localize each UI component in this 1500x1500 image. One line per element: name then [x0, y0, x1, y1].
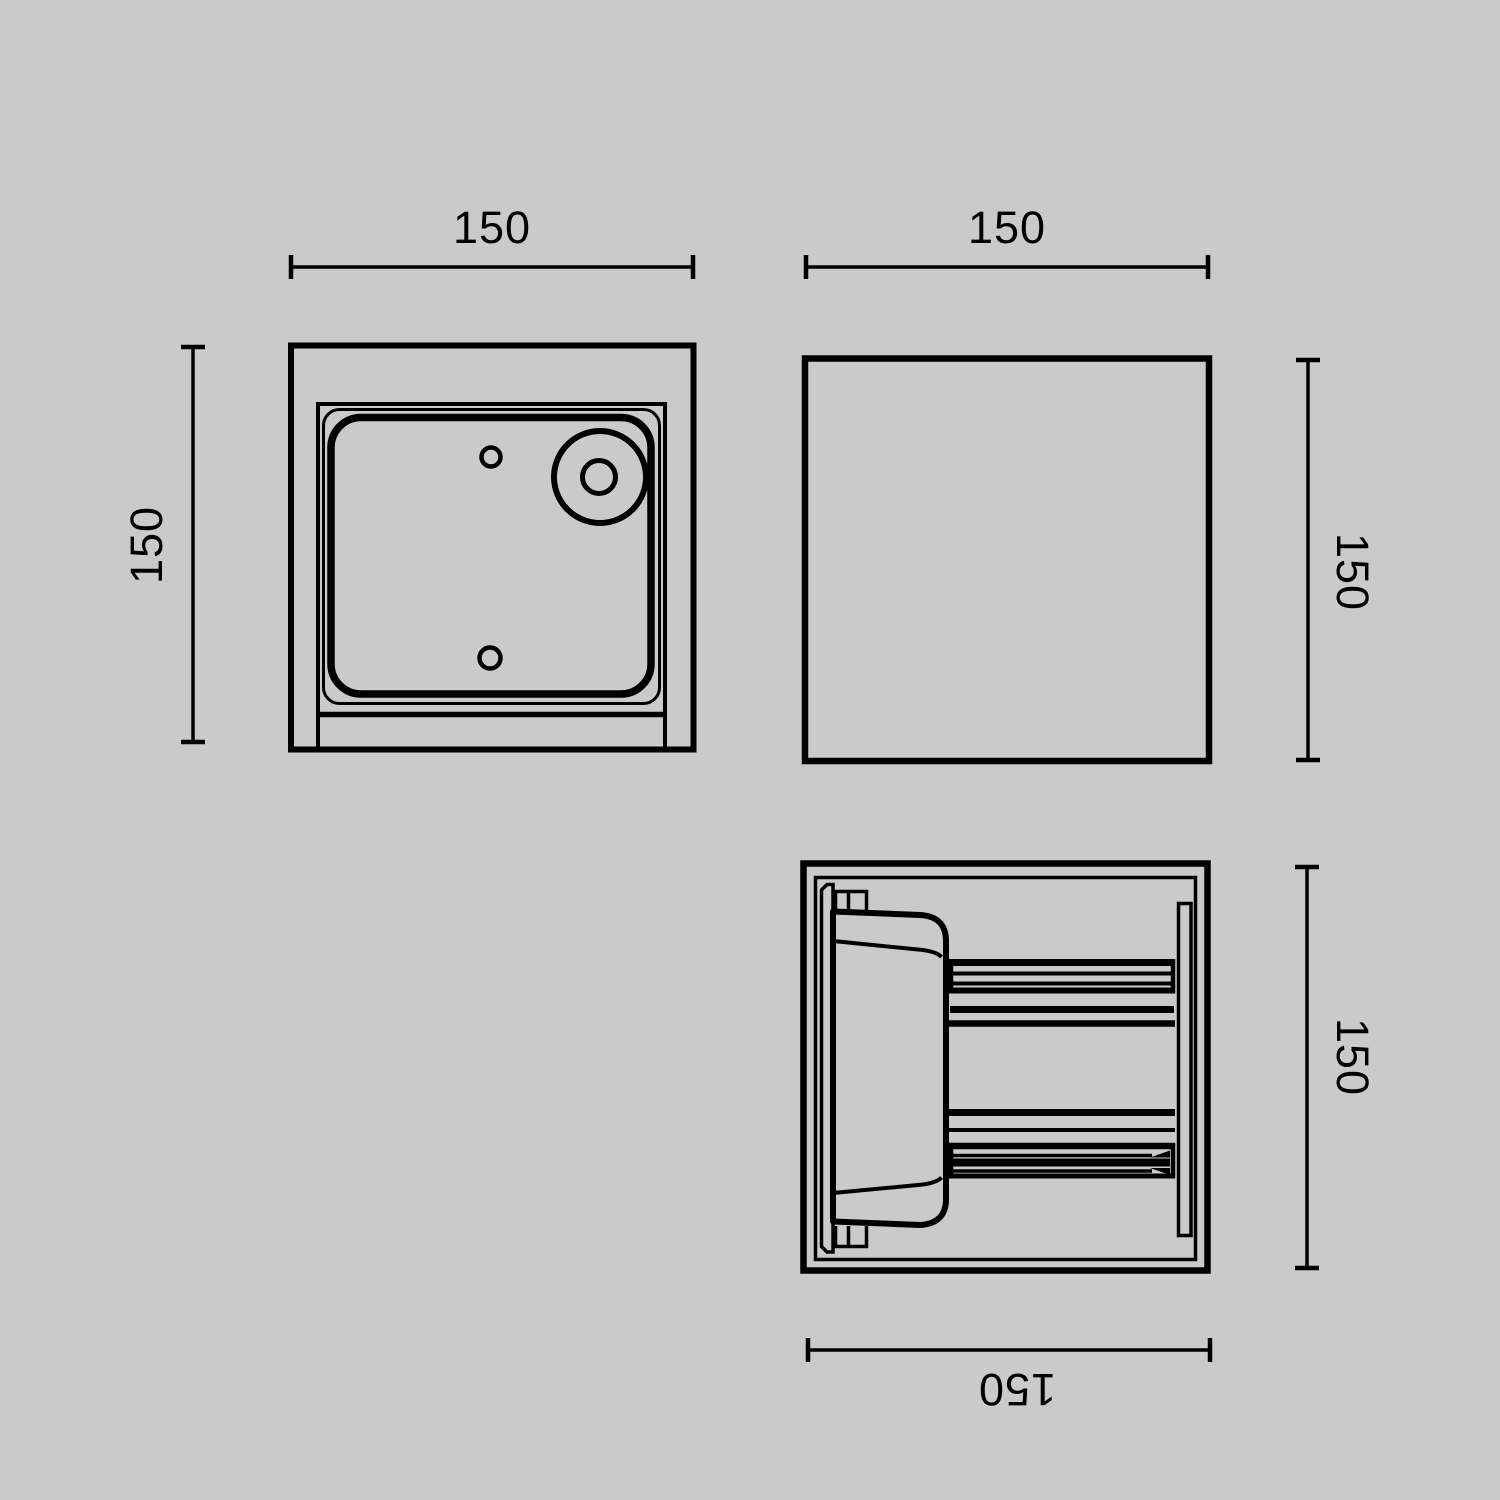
- back-view: [291, 346, 694, 750]
- clip-outline: [836, 1226, 867, 1247]
- side-width-label: 150: [968, 202, 1046, 253]
- top-view-depth-dimension: 150: [808, 1338, 1210, 1415]
- drawing-canvas: 150 150 150 150: [0, 0, 1500, 1500]
- top-view-louvers-lower: [949, 1113, 1175, 1179]
- top-view-inner-square: [816, 878, 1196, 1260]
- back-view-screw-hole-bottom: [480, 648, 501, 669]
- side-view-height-dimension: 150: [1296, 360, 1378, 760]
- side-view: [805, 359, 1209, 762]
- back-view-cable-entry-outer: [554, 431, 646, 523]
- technical-drawing-page: { "drawing": { "title": "cube wall light…: [0, 0, 1500, 1500]
- side-height-label: 150: [1327, 533, 1378, 611]
- screw-tip-upper: [1150, 1151, 1170, 1158]
- top-view-height-dimension: 150: [1295, 867, 1378, 1268]
- back-view-gasket-outline: [324, 410, 660, 704]
- top-view-clip-bottom: [836, 1226, 867, 1247]
- back-view-cable-entry-inner: [583, 461, 616, 494]
- back-view-width-dimension: 150: [291, 202, 693, 279]
- top-view-front-plate: [1179, 904, 1192, 1236]
- clip-outline: [836, 892, 867, 912]
- side-view-square: [805, 359, 1209, 762]
- top-view-body-taper-bottom: [833, 1178, 942, 1194]
- top-view-louvers-upper: [949, 959, 1175, 1024]
- top-view-outer-square: [804, 864, 1208, 1271]
- back-view-height-dimension: 150: [121, 347, 205, 742]
- back-width-label: 150: [453, 202, 531, 253]
- top-height-label: 150: [1327, 1018, 1378, 1096]
- top-view-clip-top: [836, 892, 867, 912]
- top-view-body-outline: [833, 912, 946, 1226]
- top-depth-label: 150: [978, 1364, 1056, 1415]
- back-view-screw-hole-top: [482, 448, 501, 467]
- back-height-label: 150: [121, 506, 172, 584]
- top-view: [804, 864, 1208, 1271]
- top-view-body-taper-top: [833, 941, 942, 957]
- side-view-width-dimension: 150: [806, 202, 1208, 279]
